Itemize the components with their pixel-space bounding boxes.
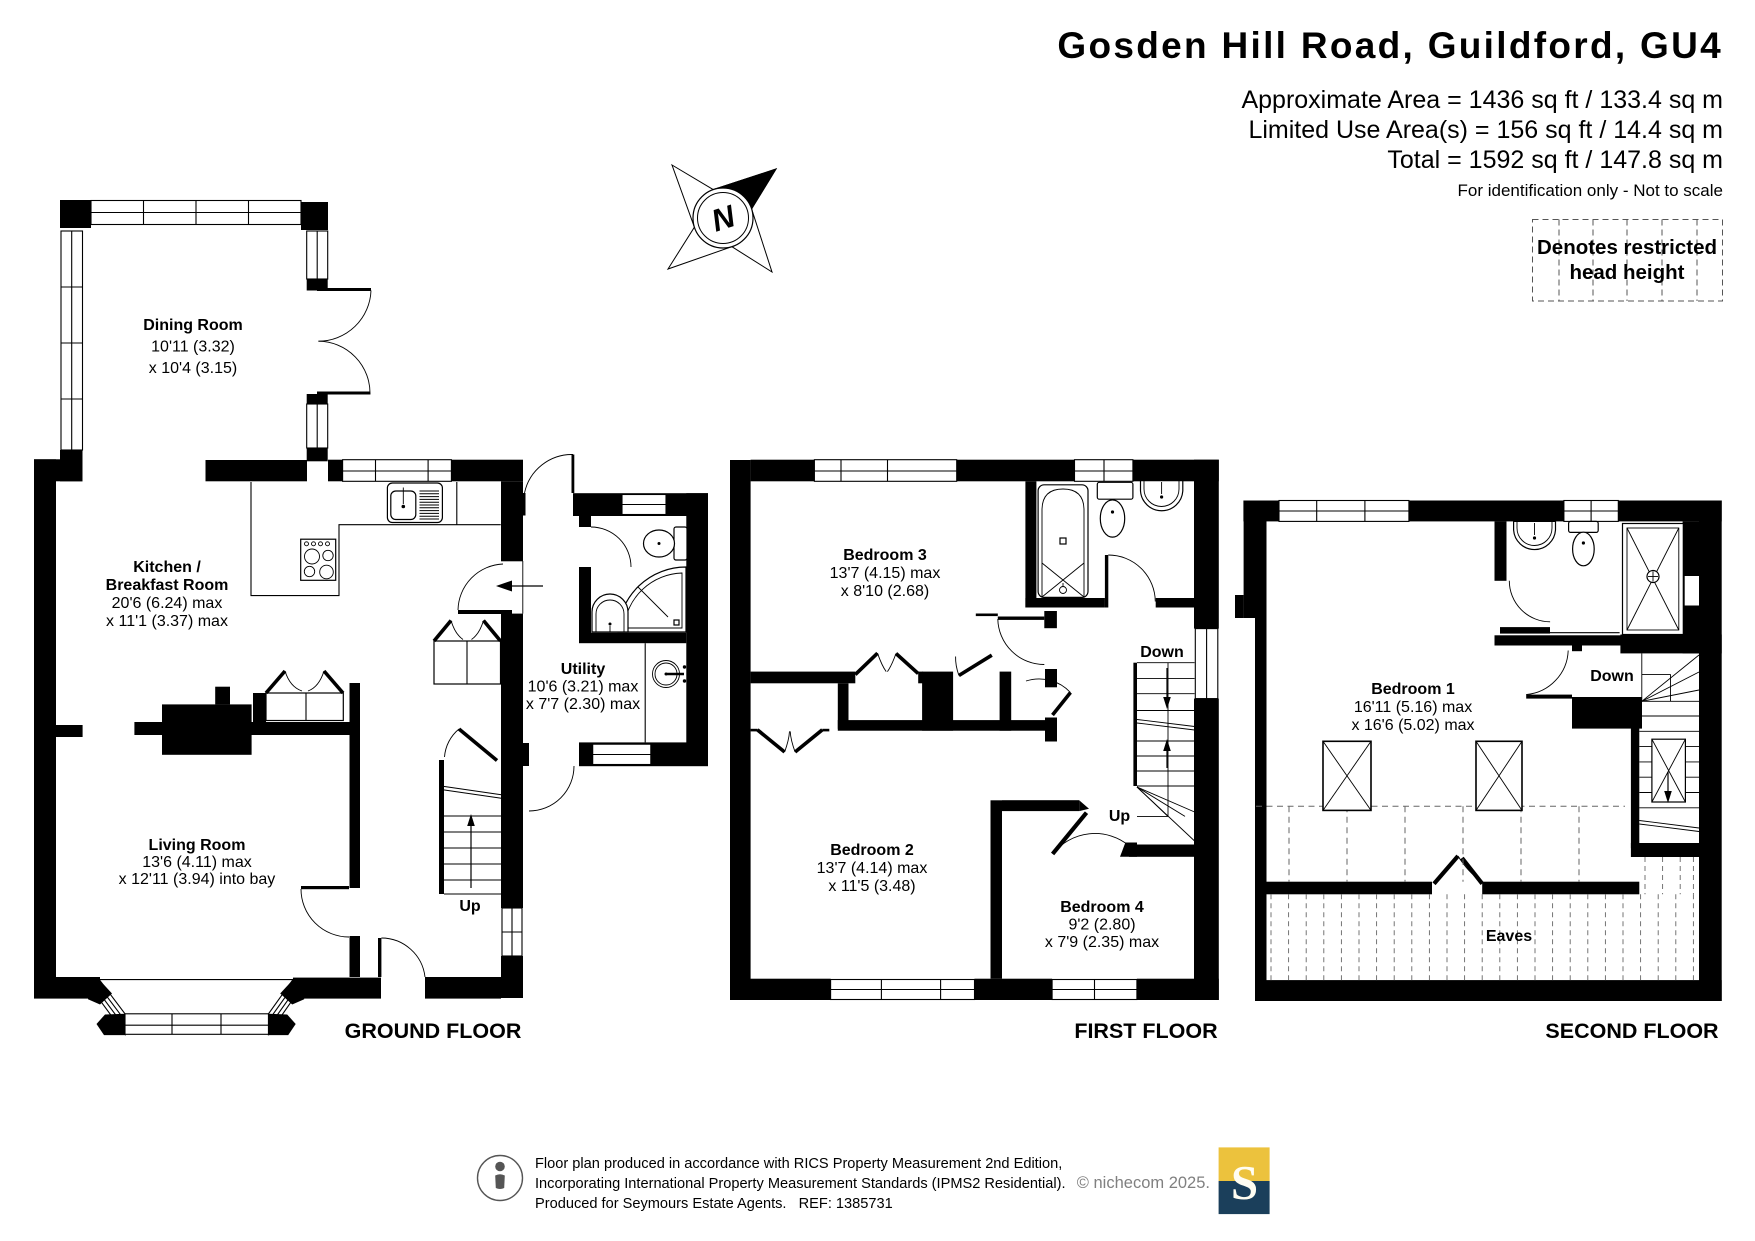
svg-text:9'2 (2.80): 9'2 (2.80) [1068, 917, 1135, 934]
svg-text:Bedroom 2: Bedroom 2 [830, 842, 914, 859]
svg-text:GROUND FLOOR: GROUND FLOOR [345, 1019, 522, 1043]
svg-text:SECOND FLOOR: SECOND FLOOR [1545, 1019, 1719, 1043]
svg-text:Incorporating International Pr: Incorporating International Property Mea… [535, 1176, 1066, 1192]
svg-text:© nichecom 2025.: © nichecom 2025. [1077, 1174, 1210, 1192]
svg-text:16'11 (5.16) max: 16'11 (5.16) max [1354, 699, 1472, 716]
svg-text:Eaves: Eaves [1486, 928, 1532, 945]
svg-text:x 10'4 (3.15): x 10'4 (3.15) [149, 360, 237, 377]
svg-text:Limited Use Area(s) = 156 sq f: Limited Use Area(s) = 156 sq ft / 14.4 s… [1248, 116, 1723, 144]
svg-text:x 12'11 (3.94) into bay: x 12'11 (3.94) into bay [119, 871, 276, 888]
svg-text:Down: Down [1140, 644, 1184, 661]
svg-text:10'11 (3.32): 10'11 (3.32) [151, 339, 235, 356]
svg-text:Floor plan produced in accorda: Floor plan produced in accordance with R… [535, 1156, 1062, 1172]
svg-text:13'6 (4.11) max: 13'6 (4.11) max [142, 854, 251, 871]
svg-text:S: S [1231, 1155, 1258, 1210]
svg-text:Living Room: Living Room [149, 837, 246, 854]
svg-text:Total = 1592 sq ft / 147.8 sq: Total = 1592 sq ft / 147.8 sq m [1387, 146, 1723, 174]
svg-text:Kitchen /: Kitchen / [133, 559, 201, 576]
svg-text:Bedroom 3: Bedroom 3 [843, 547, 927, 564]
svg-text:x 11'1 (3.37) max: x 11'1 (3.37) max [106, 613, 228, 630]
svg-text:Utility: Utility [561, 661, 606, 678]
svg-text:Up: Up [459, 898, 481, 915]
svg-text:Produced for Seymours Estate A: Produced for Seymours Estate Agents. REF… [535, 1196, 893, 1212]
svg-text:Down: Down [1590, 668, 1634, 685]
svg-text:Approximate Area = 1436 sq ft: Approximate Area = 1436 sq ft / 133.4 sq… [1241, 86, 1723, 114]
svg-text:x 11'5 (3.48): x 11'5 (3.48) [828, 878, 915, 895]
svg-text:Breakfast Room: Breakfast Room [106, 577, 229, 594]
svg-text:20'6 (6.24) max: 20'6 (6.24) max [112, 595, 223, 612]
svg-text:FIRST FLOOR: FIRST FLOOR [1074, 1019, 1218, 1043]
svg-text:13'7 (4.15) max: 13'7 (4.15) max [830, 565, 941, 582]
svg-text:For identification only - Not: For identification only - Not to scale [1457, 181, 1723, 200]
svg-text:Up: Up [1109, 808, 1131, 825]
svg-text:13'7 (4.14) max: 13'7 (4.14) max [817, 860, 928, 877]
svg-text:head height: head height [1569, 261, 1684, 284]
svg-text:Dining Room: Dining Room [143, 317, 243, 334]
svg-text:Gosden Hill Road, Guildford, G: Gosden Hill Road, Guildford, GU4 [1057, 25, 1723, 66]
svg-text:10'6 (3.21) max: 10'6 (3.21) max [528, 679, 639, 696]
svg-text:Bedroom 4: Bedroom 4 [1060, 899, 1144, 916]
svg-text:x 8'10 (2.68): x 8'10 (2.68) [841, 583, 929, 600]
svg-text:x 16'6 (5.02) max: x 16'6 (5.02) max [1351, 717, 1474, 734]
svg-text:x 7'7 (2.30) max: x 7'7 (2.30) max [526, 696, 640, 713]
svg-text:x 7'9 (2.35) max: x 7'9 (2.35) max [1045, 934, 1159, 951]
svg-text:Bedroom 1: Bedroom 1 [1371, 681, 1455, 698]
svg-text:Denotes restricted: Denotes restricted [1537, 236, 1717, 259]
